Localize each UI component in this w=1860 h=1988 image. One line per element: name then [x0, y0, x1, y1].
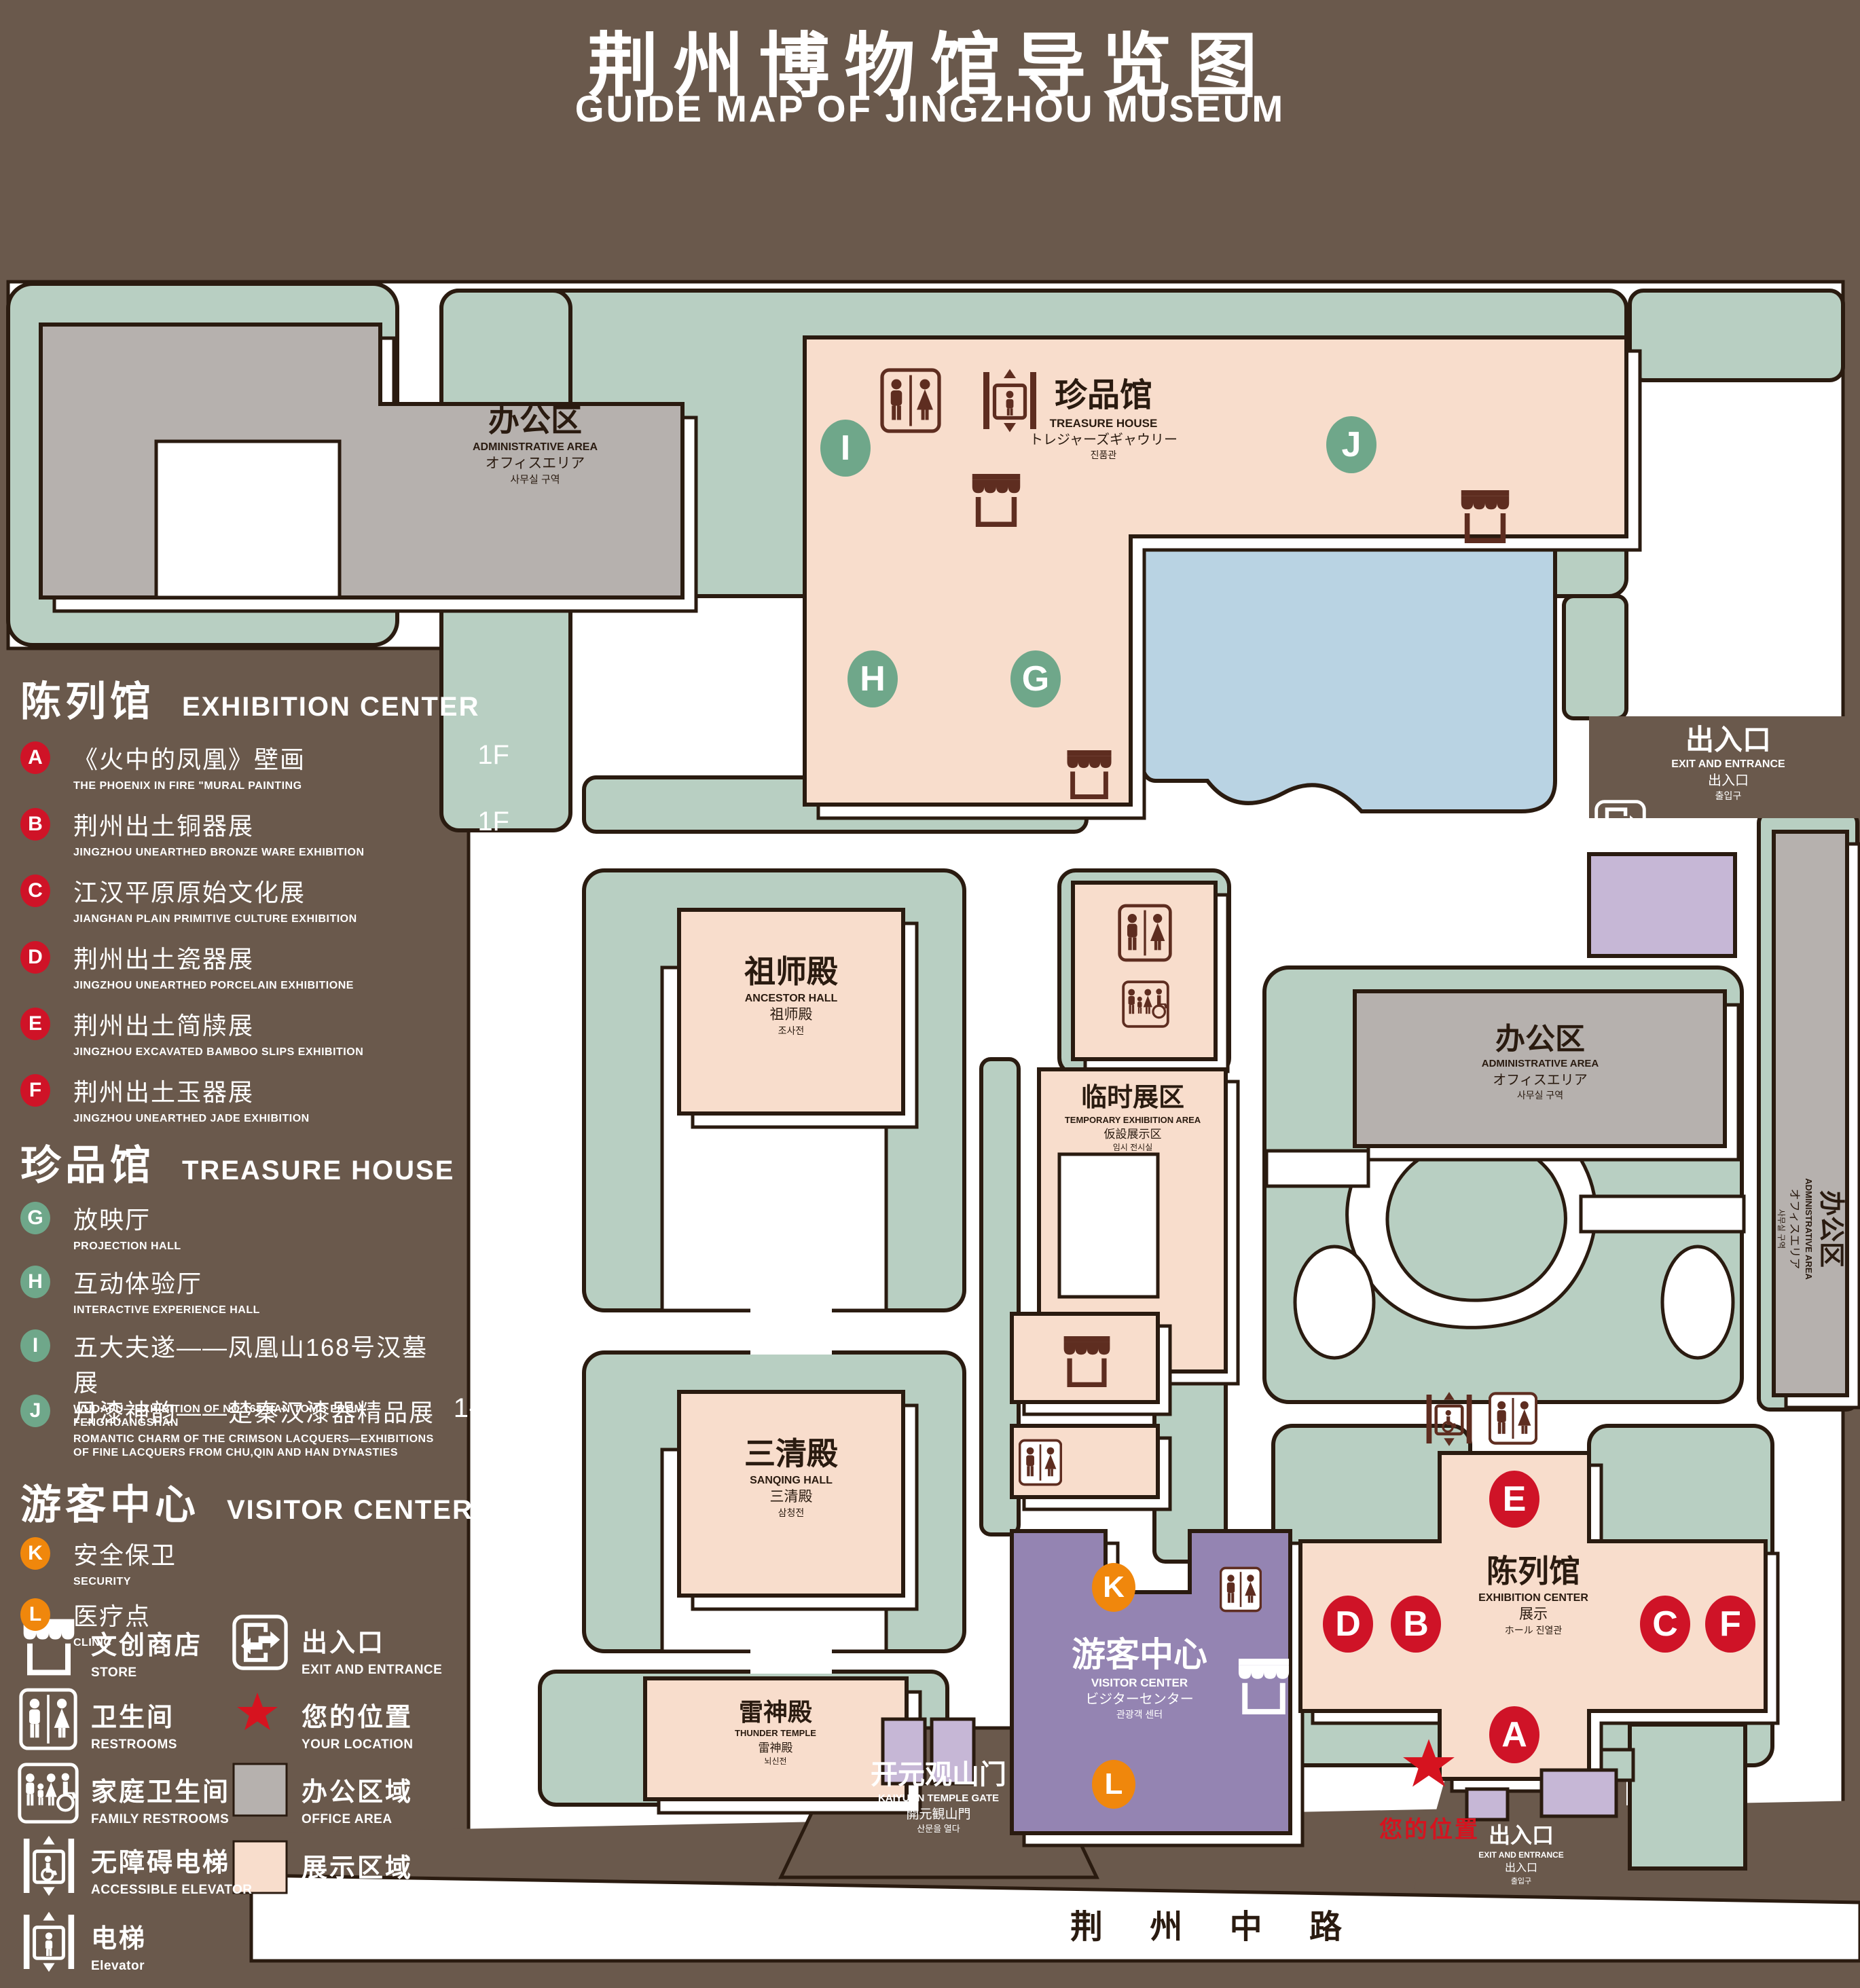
legend-pictogram-family-restrooms: 家庭卫生间FAMILY RESTROOMS — [91, 1771, 230, 1827]
legend-item: G 放映厅 PROJECTION HALL 1F — [20, 1200, 509, 1253]
legend-item: J 丹漆神韵——楚秦汉漆器精品展 ROMANTIC CHARM OF THE C… — [20, 1393, 509, 1460]
legend-item: F 荆州出土玉器展 JINGZHOU UNEARTHED JADE EXHIBI… — [20, 1073, 509, 1126]
legend-section-exhibition: 陈列馆 EXHIBITION CENTER — [20, 669, 479, 728]
item-floor: 2F — [477, 940, 509, 970]
family-restroom-icon — [20, 1765, 77, 1822]
poster-subtitle: GUIDE MAP OF JINGZHOU MUSEUM — [0, 87, 1860, 130]
section-title-en: TREASURE HOUSE — [182, 1156, 454, 1186]
item-en: JINGZHOU EXCAVATED BAMBOO SLIPS EXHIBITI… — [73, 1046, 448, 1059]
legend-item: E 荆州出土简牍展 JINGZHOU EXCAVATED BAMBOO SLIP… — [20, 1006, 509, 1059]
item-badge: J — [20, 1395, 50, 1427]
item-floor: 2F — [477, 1006, 509, 1037]
item-zh: 江汉平原原始文化展 — [73, 873, 448, 908]
item-zh: 五大夫遂——凤凰山168号汉墓展 — [73, 1328, 448, 1399]
item-badge: A — [20, 741, 50, 774]
item-badge: F — [20, 1074, 50, 1107]
label-exit-southeast: 出入口 EXIT AND ENTRANCE 出入口 출입구 — [1478, 1821, 1564, 1888]
entrance-pavilion-ne — [1589, 854, 1735, 956]
legend-item: B 荆州出土铜器展 JINGZHOU UNEARTHED BRONZE WARE… — [20, 807, 509, 860]
pond — [1141, 540, 1555, 811]
label-ancestor-hall: 祖师殿 ANCESTOR HALL 祖师殿 조사전 — [744, 952, 838, 1039]
section-title-zh: 游客中心 — [20, 1472, 200, 1531]
item-zh: 荆州出土瓷器展 — [73, 940, 448, 975]
restroom-icon — [21, 1690, 75, 1748]
item-zh: 荆州出土简牍展 — [73, 1006, 448, 1042]
section-title-zh: 珍品馆 — [20, 1133, 155, 1192]
item-zh: 《火中的凤凰》壁画 — [73, 740, 448, 775]
label-your-location: 您的位置 — [1379, 1814, 1480, 1845]
guide-map-poster: 荆州博物馆导览图 GUIDE MAP OF JINGZHOU MUSEUM 陈列… — [0, 0, 1860, 1988]
item-badge: E — [20, 1008, 50, 1040]
legend-pictogram-office-area: 办公区域OFFICE AREA — [302, 1771, 413, 1827]
legend-item: K 安全保卫 SECURITY 1F — [20, 1536, 509, 1589]
section-title-en: EXHIBITION CENTER — [182, 692, 479, 722]
item-badge: H — [20, 1266, 50, 1298]
legend-pictogram-exit: 出入口EXIT AND ENTRANCE — [302, 1621, 442, 1678]
item-zh: 荆州出土铜器展 — [73, 807, 448, 842]
label-temporary-exhibition: 临时展区 TEMPORARY EXHIBITION AREA 仮設展示区 임시 … — [1065, 1081, 1201, 1156]
item-zh: 安全保卫 — [73, 1536, 448, 1571]
item-floor: 2F — [477, 1073, 509, 1103]
item-floor: 2F — [477, 1328, 509, 1359]
marker-l: L — [1092, 1760, 1135, 1809]
item-en: JINGZHOU UNEARTHED PORCELAIN EXHIBITIONE — [73, 979, 448, 993]
label-visitor-center: 游客中心 VISITOR CENTER ビジターセンター 관광객 센터 — [1072, 1633, 1207, 1723]
label-admin-east: 办公区 ADMINISTRATIVE AREA オフィスエリア 사무실 구역 — [1482, 1020, 1599, 1104]
item-en: SECURITY — [73, 1575, 448, 1589]
item-floor: 1F — [477, 1597, 509, 1627]
store-building — [1012, 1314, 1158, 1402]
legend-pictogram-display-area: 展示区域DISPLAY AREA — [302, 1847, 413, 1903]
restroom-icon — [1490, 1393, 1536, 1443]
label-thunder-temple: 雷神殿 THUNDER TEMPLE 雷神殿 뇌신전 — [735, 1696, 816, 1769]
item-badge: K — [20, 1537, 50, 1570]
legend-pictogram-store: 文创商店STORE — [91, 1624, 202, 1680]
legend-pictogram-accessible-elevator: 无障碍电梯ACCESSIBLE ELEVATOR — [91, 1841, 253, 1898]
item-badge: D — [20, 941, 50, 974]
legend-section-treasure: 珍品馆 TREASURE HOUSE — [20, 1133, 454, 1192]
marker-d: D — [1323, 1596, 1373, 1653]
item-zh: 放映厅 — [73, 1200, 448, 1236]
item-badge: I — [20, 1329, 50, 1362]
map-graphic — [0, 0, 1860, 1988]
label-admin-strip: 办公区 ADMINISTRATIVE AREA オフィスエリア 사무실 구역 — [1773, 1178, 1848, 1280]
item-floor: 1F — [477, 873, 509, 904]
item-en: PROJECTION HALL — [73, 1240, 448, 1253]
legend-item: A 《火中的凤凰》壁画 THE PHOENIX IN FIRE "MURAL P… — [20, 740, 509, 793]
item-badge: B — [20, 808, 50, 841]
item-zh: 丹漆神韵——楚秦汉漆器精品展 — [73, 1393, 448, 1429]
item-floor: 1F — [477, 1536, 509, 1566]
restroom-icon — [1221, 1568, 1261, 1610]
marker-f: F — [1705, 1596, 1755, 1653]
item-floor: 1F — [477, 807, 509, 837]
marker-j: J — [1326, 416, 1376, 473]
item-floor: 1F — [477, 740, 509, 771]
legend-section-visitor: 游客中心 VISITOR CENTER — [20, 1472, 473, 1531]
item-en: THE PHOENIX IN FIRE "MURAL PAINTING — [73, 779, 448, 793]
legend-item: D 荆州出土瓷器展 JINGZHOU UNEARTHED PORCELAIN E… — [20, 940, 509, 993]
marker-e: E — [1489, 1471, 1539, 1528]
label-kaiyuan-gate: 开元观山门 KAIYUAN TEMPLE GATE 開元観山門 산문을 열다 — [871, 1757, 1006, 1837]
restroom-icon — [1020, 1440, 1061, 1484]
marker-c: C — [1640, 1596, 1690, 1653]
administrative-strip-building — [1774, 832, 1847, 1395]
item-en: JINGZHOU UNEARTHED JADE EXHIBITION — [73, 1112, 448, 1126]
item-badge: C — [20, 875, 50, 907]
legend-item: C 江汉平原原始文化展 JIANGHAN PLAIN PRIMITIVE CUL… — [20, 873, 509, 926]
legend-pictogram-restrooms: 卫生间RESTROOMS — [91, 1696, 177, 1752]
marker-k: K — [1092, 1563, 1135, 1612]
marker-i: I — [820, 420, 871, 477]
item-floor: 1F — [477, 1264, 509, 1295]
item-en: ROMANTIC CHARM OF THE CRIMSON LACQUERS—E… — [73, 1433, 448, 1460]
item-zh: 互动体验厅 — [73, 1264, 448, 1300]
marker-a: A — [1489, 1706, 1539, 1763]
item-en: JIANGHAN PLAIN PRIMITIVE CULTURE EXHIBIT… — [73, 913, 448, 926]
exit-pavilion-b — [1542, 1770, 1616, 1816]
item-badge: L — [20, 1598, 50, 1631]
elevator-icon — [24, 1912, 74, 1972]
label-road: 荆 州 中 路 — [1070, 1907, 1361, 1949]
item-en: INTERACTIVE EXPERIENCE HALL — [73, 1304, 448, 1317]
label-admin-nw: 办公区 ADMINISTRATIVE AREA オフィスエリア 사무실 구역 — [473, 401, 598, 489]
item-floor: 1F — [477, 1200, 509, 1231]
item-badge: G — [20, 1202, 50, 1234]
item-en: JINGZHOU UNEARTHED BRONZE WARE EXHIBITIO… — [73, 846, 448, 860]
legend-item: H 互动体验厅 INTERACTIVE EXPERIENCE HALL 1F — [20, 1264, 509, 1317]
item-zh: 荆州出土玉器展 — [73, 1073, 448, 1108]
label-sanqing-hall: 三清殿 SANQING HALL 三清殿 삼청전 — [744, 1434, 838, 1522]
legend-pictogram-elevator: 电梯Elevator — [91, 1917, 147, 1974]
section-title-zh: 陈列馆 — [20, 669, 155, 728]
label-treasure-house: 珍品馆 TREASURE HOUSE トレジャーズギャウリー 진품관 — [1029, 375, 1178, 464]
accessible-elevator-icon — [24, 1836, 74, 1896]
label-exhibition-center: 陈列馆 EXHIBITION CENTER 展示 ホール 진열관 — [1478, 1551, 1588, 1639]
label-exit-northeast: 出入口 EXIT AND ENTRANCE 出入口 출입구 — [1671, 721, 1785, 805]
section-title-en: VISITOR CENTER — [227, 1495, 473, 1526]
office-area-swatch — [234, 1764, 287, 1816]
your-location-star-icon — [237, 1693, 278, 1730]
marker-b: B — [1391, 1596, 1441, 1653]
legend-pictogram-your-location: 您的位置YOUR LOCATION — [302, 1696, 413, 1752]
restroom-building — [1073, 883, 1216, 1059]
item-floor: 1-2F — [454, 1393, 509, 1424]
marker-h: H — [847, 650, 898, 707]
marker-g: G — [1010, 650, 1061, 707]
